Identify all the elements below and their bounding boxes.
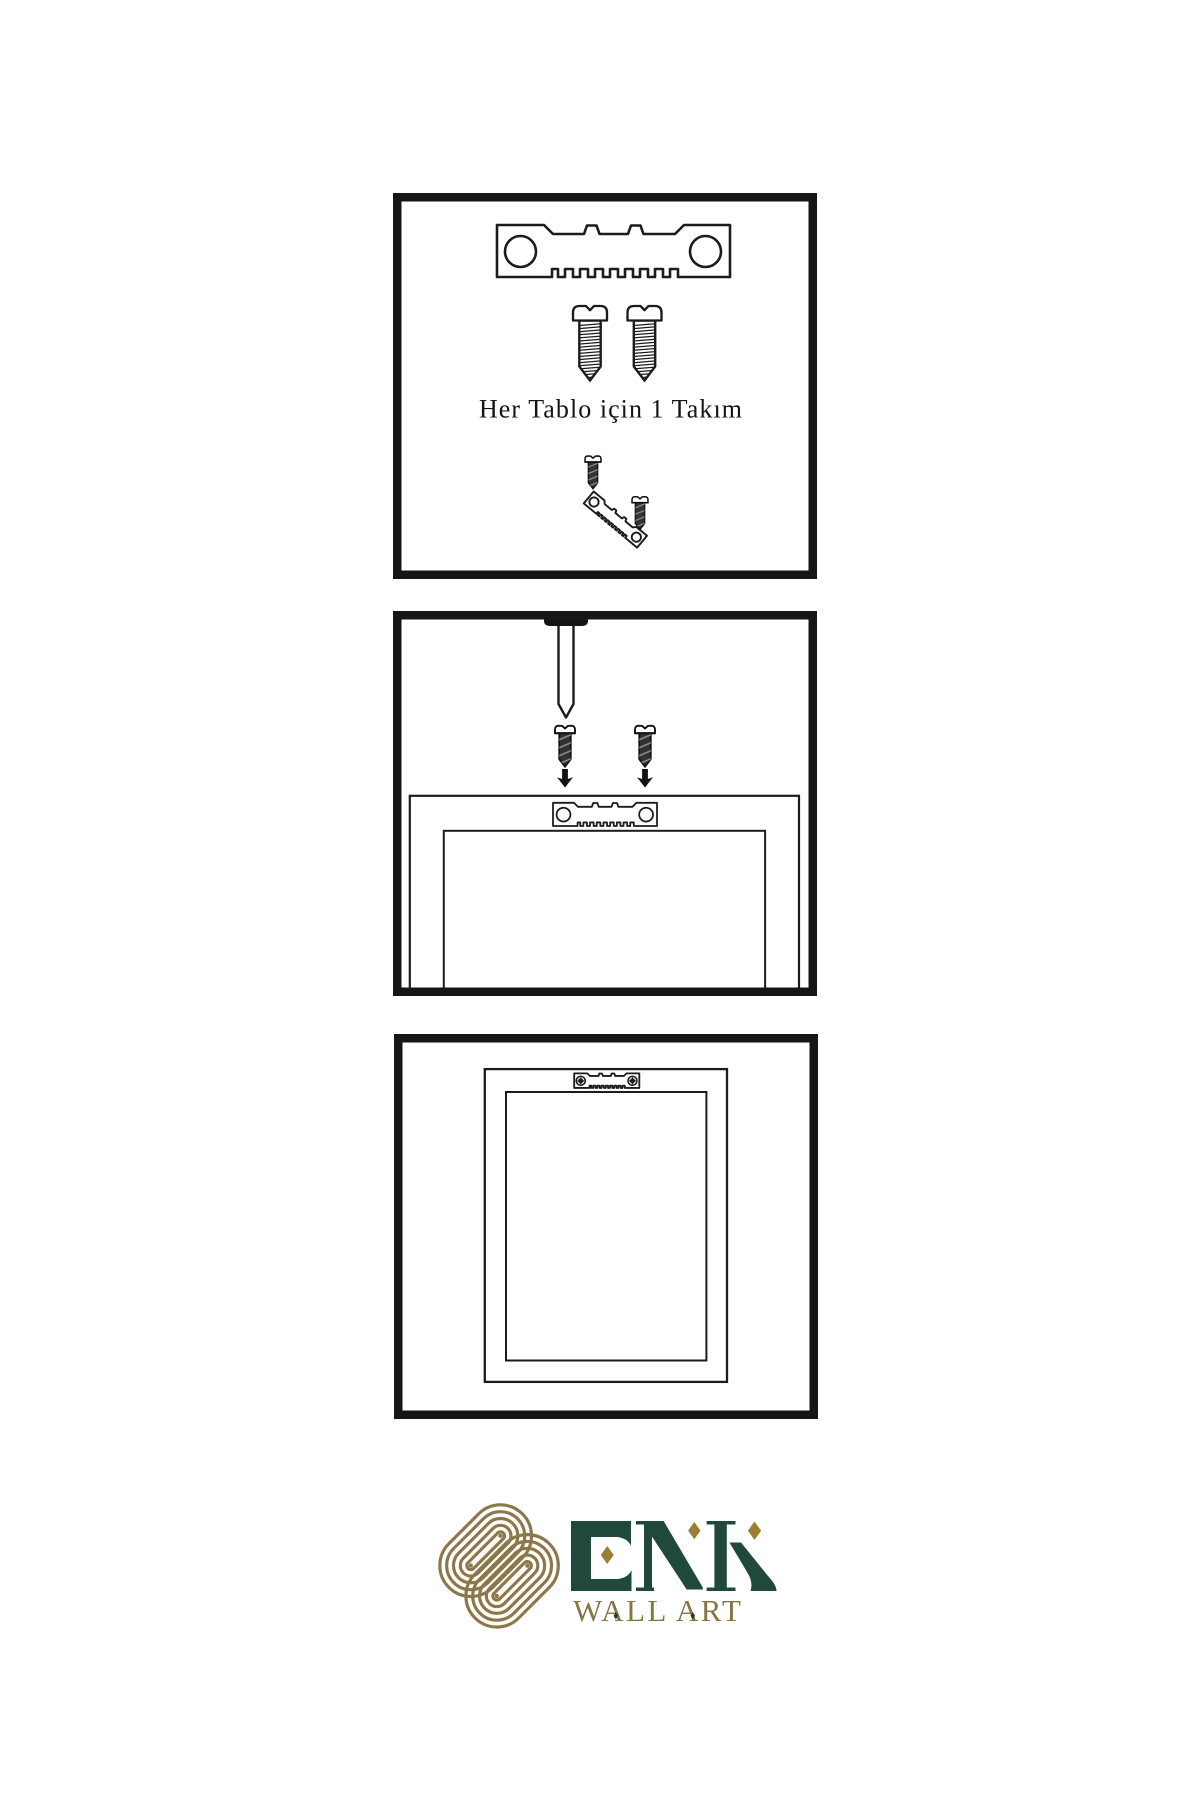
svg-text:Her Tablo için 1 Takım: Her Tablo için 1 Takım <box>479 395 743 424</box>
svg-text:WALL ART: WALL ART <box>573 1593 743 1628</box>
